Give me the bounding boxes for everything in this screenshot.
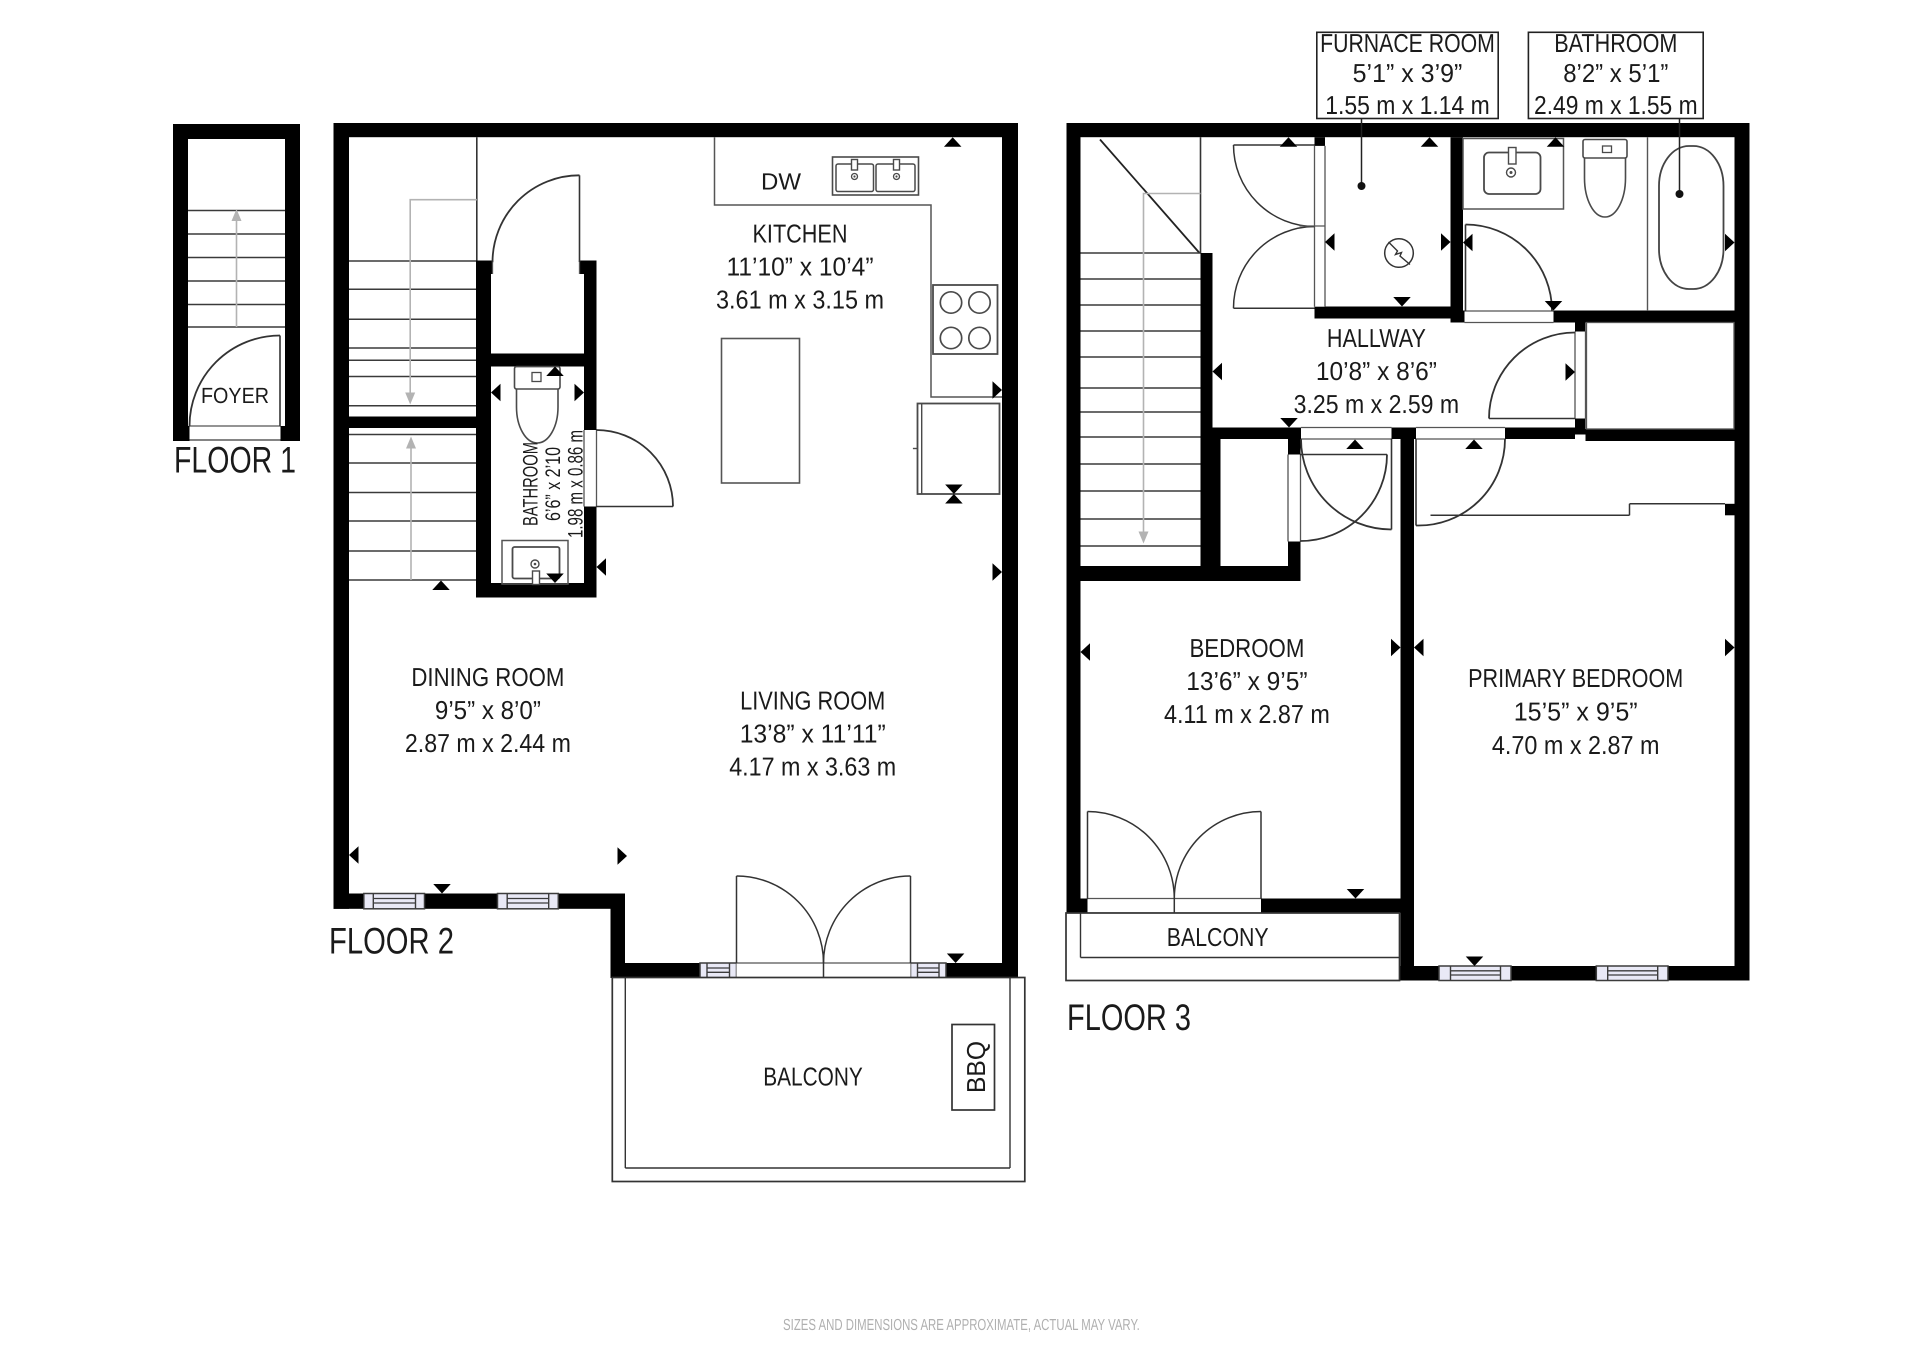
svg-text:4.17 m x 3.63 m: 4.17 m x 3.63 m	[729, 752, 896, 782]
svg-text:10’8” x 8’6”: 10’8” x 8’6”	[1316, 356, 1437, 386]
svg-text:PRIMARY BEDROOM: PRIMARY BEDROOM	[1468, 663, 1683, 693]
svg-text:1.55 m x 1.14 m: 1.55 m x 1.14 m	[1325, 90, 1490, 120]
svg-text:4.70 m x 2.87 m: 4.70 m x 2.87 m	[1492, 730, 1660, 760]
svg-text:BBQ: BBQ	[961, 1041, 991, 1093]
svg-text:6’6” x 2’10: 6’6” x 2’10	[542, 447, 565, 521]
svg-text:BATHROOM: BATHROOM	[519, 442, 542, 526]
svg-text:13’6” x 9’5”: 13’6” x 9’5”	[1186, 666, 1307, 696]
svg-text:2.87 m x 2.44 m: 2.87 m x 2.44 m	[405, 728, 571, 758]
svg-text:3.61 m x 3.15 m: 3.61 m x 3.15 m	[716, 285, 884, 315]
svg-text:FOYER: FOYER	[201, 383, 269, 408]
svg-text:DINING ROOM: DINING ROOM	[411, 662, 564, 692]
svg-text:FLOOR 2: FLOOR 2	[329, 921, 454, 962]
svg-text:BATHROOM: BATHROOM	[1554, 28, 1677, 58]
svg-text:1.98 m x 0.86 m: 1.98 m x 0.86 m	[565, 430, 588, 538]
svg-text:DW: DW	[761, 169, 802, 195]
svg-text:FLOOR 1: FLOOR 1	[174, 440, 296, 481]
svg-text:HALLWAY: HALLWAY	[1327, 323, 1426, 353]
svg-text:BEDROOM: BEDROOM	[1189, 633, 1304, 663]
svg-text:11’10” x 10’4”: 11’10” x 10’4”	[727, 252, 874, 282]
svg-text:SIZES AND DIMENSIONS ARE APPRO: SIZES AND DIMENSIONS ARE APPROXIMATE, AC…	[783, 1317, 1140, 1334]
svg-text:BALCONY: BALCONY	[763, 1061, 863, 1091]
svg-text:2.49 m x 1.55 m: 2.49 m x 1.55 m	[1534, 90, 1698, 120]
svg-text:LIVING ROOM: LIVING ROOM	[740, 686, 885, 716]
svg-text:BALCONY: BALCONY	[1167, 922, 1269, 952]
svg-text:FURNACE ROOM: FURNACE ROOM	[1320, 28, 1495, 58]
svg-text:4.11 m x 2.87 m: 4.11 m x 2.87 m	[1164, 699, 1330, 729]
svg-text:KITCHEN: KITCHEN	[753, 218, 848, 248]
svg-text:8’2” x 5’1”: 8’2” x 5’1”	[1563, 58, 1668, 88]
svg-text:5’1” x 3’9”: 5’1” x 3’9”	[1353, 58, 1463, 88]
svg-text:13’8” x 11’11”: 13’8” x 11’11”	[740, 719, 886, 749]
svg-text:FLOOR 3: FLOOR 3	[1067, 997, 1191, 1038]
svg-text:15’5” x 9’5”: 15’5” x 9’5”	[1514, 697, 1638, 727]
svg-text:3.25 m x 2.59 m: 3.25 m x 2.59 m	[1294, 389, 1460, 419]
svg-text:9’5” x 8’0”: 9’5” x 8’0”	[435, 695, 541, 725]
